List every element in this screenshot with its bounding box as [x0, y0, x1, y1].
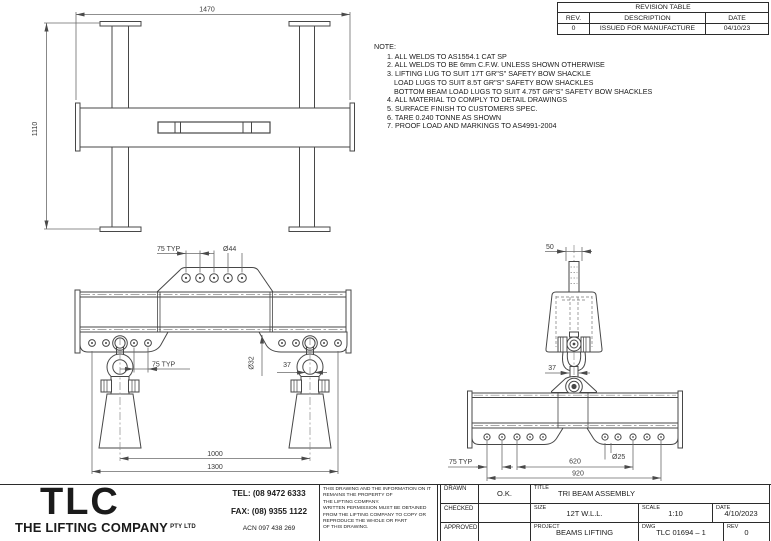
drawing-sheet: 1470 1110 [0, 0, 771, 541]
dim-front-plate-dia: Ø32 [249, 356, 256, 369]
titleblock-project-cell: PROJECT BEAMS LIFTING [530, 522, 638, 541]
side-view: 50 37 75 TYP 620 920 Ø25 [448, 244, 683, 481]
copyright-disclaimer: THIS DRAWING AND THE INFORMATION ON IT R… [319, 484, 438, 541]
approved-value-text [479, 523, 530, 541]
size-value: 12T W.L.L. [531, 504, 638, 522]
titleblock-drawn-label: DRAWN [440, 484, 478, 503]
checked-value-text [479, 504, 530, 522]
dim-front-dia-top: Ø44 [223, 246, 236, 253]
company-name-text: THE LIFTING COMPANY [15, 520, 168, 535]
dim-plan-height: 1110 [32, 122, 39, 137]
plan-view: 1470 1110 [32, 7, 355, 232]
titleblock-rev-cell: REV 0 [723, 522, 770, 541]
titleblock-dwg-cell: DWG TLC 01694 – 1 [638, 522, 723, 541]
dim-front-span-inner: 1000 [207, 451, 223, 458]
disclaimer-line: WRITTEN PERMISSION MUST BE OBTAINED [323, 506, 437, 512]
dim-side-hole-dia: Ø25 [612, 454, 625, 461]
dim-plan-width: 1470 [199, 7, 215, 14]
dim-front-pin-width: 37 [283, 362, 291, 369]
date-value: 4/10/2023 [713, 504, 769, 522]
notes-heading: NOTE: [374, 43, 704, 52]
dim-side-pitch: 75 TYP [449, 459, 473, 466]
titleblock-date-cell: DATE 4/10/2023 [712, 503, 770, 522]
titleblock-approved-label: APPROVED [440, 522, 478, 541]
revision-col-rev: REV. [558, 13, 590, 24]
revision-col-date: DATE [706, 13, 768, 24]
company-fax: FAX: (08) 9355 1122 [218, 507, 320, 516]
titleblock-checked-label: CHECKED [440, 503, 478, 522]
dim-side-span-outer: 920 [572, 471, 584, 478]
dim-side-link-width: 37 [548, 365, 556, 372]
dim-front-span-outer: 1300 [207, 464, 223, 471]
revision-row-date: 04/10/23 [706, 24, 768, 34]
titleblock-checked-value [478, 503, 530, 522]
title-value: TRI BEAM ASSEMBLY [531, 484, 771, 503]
dim-front-pitch-bottom: 75 TYP [152, 362, 176, 369]
company-logo: TLC [40, 485, 120, 519]
titleblock-title-cell: TITLE TRI BEAM ASSEMBLY [530, 484, 770, 503]
disclaimer-line: OF THIS DRAWING. [323, 525, 437, 531]
project-value: BEAMS LIFTING [531, 523, 638, 541]
drawn-value-text: O.K. [479, 484, 530, 503]
titleblock-approved-value [478, 522, 530, 541]
company-tel: TEL: (08 9472 6333 [218, 489, 320, 498]
dim-side-span-mid: 620 [569, 459, 581, 466]
scale-value: 1:10 [639, 504, 712, 522]
titleblock-scale-cell: SCALE 1:10 [638, 503, 712, 522]
revision-col-description: DESCRIPTION [590, 13, 706, 24]
dim-front-pitch-top: 75 TYP [157, 246, 181, 253]
revision-row-description: ISSUED FOR MANUFACTURE [590, 24, 706, 34]
front-view: 75 TYP Ø44 75 TYP Ø32 37 1000 1300 [75, 246, 351, 474]
revision-table: REVISION TABLE REV. DESCRIPTION DATE 0 I… [557, 2, 769, 35]
dim-side-bar-width: 50 [546, 244, 554, 251]
revision-table-title: REVISION TABLE [558, 3, 768, 13]
titleblock-drawn-value: O.K. [478, 484, 530, 503]
notes-block: NOTE: 1. ALL WELDS TO AS1554.1 CAT SP 2.… [374, 43, 704, 131]
company-acn: ACN 097 438 269 [218, 525, 320, 532]
revision-row-rev: 0 [558, 24, 590, 34]
note-line: 7. PROOF LOAD AND MARKINGS TO AS4991-200… [374, 122, 704, 131]
titleblock-size-cell: SIZE 12T W.L.L. [530, 503, 638, 522]
company-suffix: PTY LTD [170, 524, 196, 530]
rev-value: 0 [724, 523, 769, 541]
company-name: THE LIFTING COMPANYPTY LTD [15, 520, 196, 535]
dwg-value: TLC 01694 – 1 [639, 523, 723, 541]
